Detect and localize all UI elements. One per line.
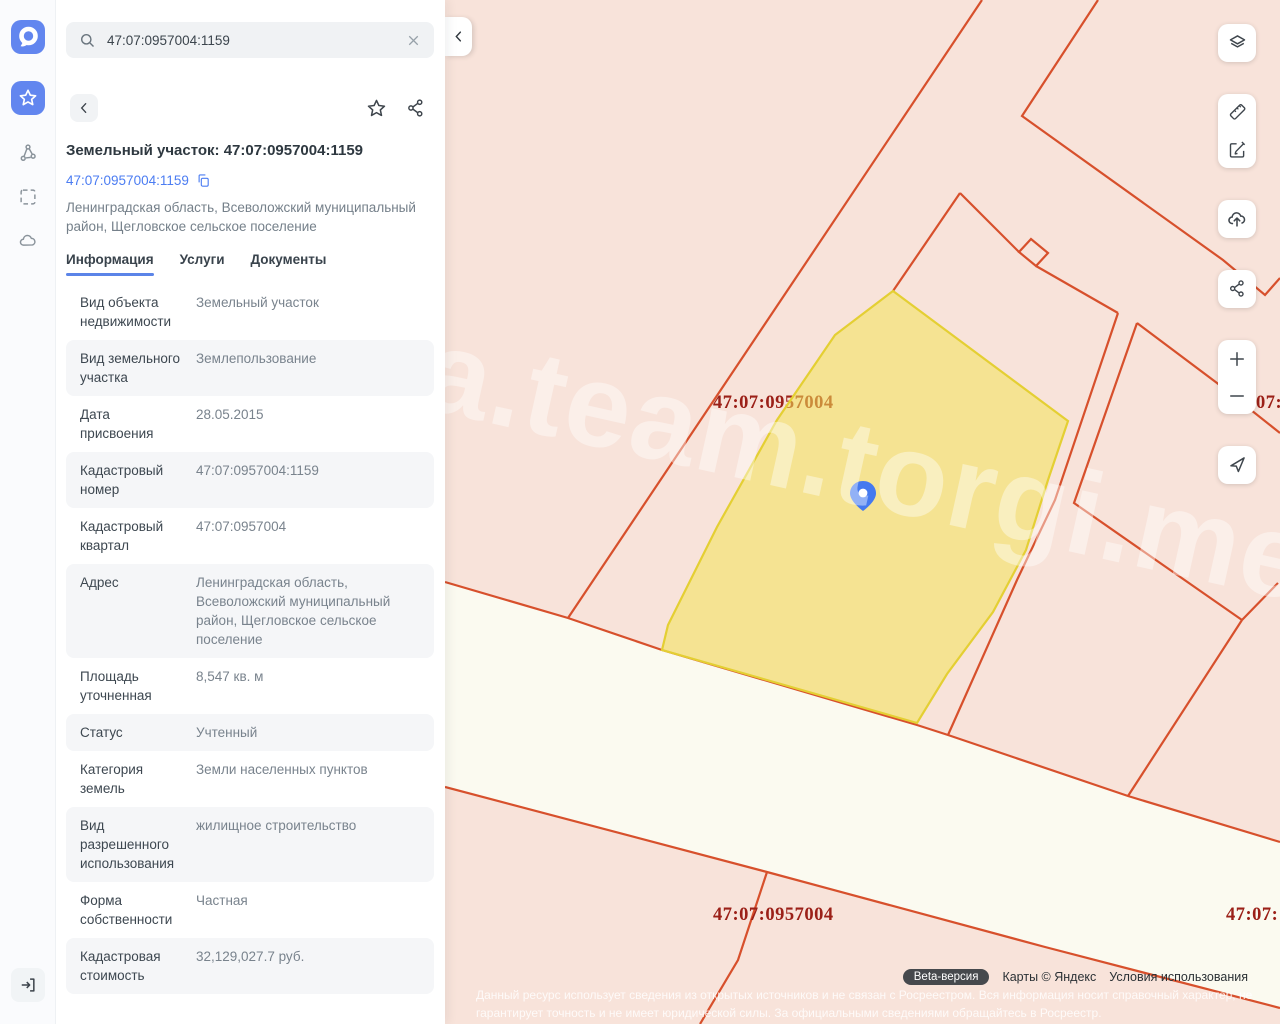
- upload-cloud-button[interactable]: [1218, 200, 1256, 237]
- minus-icon: [1227, 386, 1247, 406]
- map-attribution: Beta-версия Карты © Яндекс Условия испол…: [903, 969, 1248, 985]
- share-map-button[interactable]: [1218, 270, 1256, 307]
- chevron-left-icon: [451, 29, 466, 44]
- app-logo-icon: [15, 24, 41, 50]
- object-address: Ленинградская область, Всеволожский муни…: [66, 198, 430, 236]
- zoom-in-button[interactable]: [1218, 340, 1256, 377]
- edit-icon: [1227, 139, 1248, 160]
- row-value: Земельный участок: [196, 293, 420, 331]
- object-header-row: [70, 94, 430, 122]
- locate-control: [1218, 446, 1256, 484]
- row-value: 47:07:0957004:1159: [196, 461, 420, 499]
- quarter-label: 47:07:0957004: [713, 905, 834, 925]
- cadastral-number-link[interactable]: 47:07:0957004:1159: [66, 173, 189, 188]
- page-title: Земельный участок: 47:07:0957004:1159: [66, 142, 430, 159]
- row-value: 8,547 кв. м: [196, 667, 420, 705]
- ruler-button[interactable]: [1218, 94, 1256, 131]
- table-row: Форма собственности Частная: [66, 882, 434, 938]
- search-bar[interactable]: [66, 22, 434, 58]
- share-control: [1218, 270, 1256, 308]
- row-value: Частная: [196, 891, 420, 929]
- zoom-control: [1218, 340, 1256, 414]
- row-label: Форма собственности: [80, 891, 182, 929]
- tab-documents[interactable]: Документы: [251, 252, 327, 276]
- sidebar-item-graph[interactable]: [11, 131, 45, 175]
- sign-in-button[interactable]: [11, 968, 45, 1002]
- measure-edit-control: [1218, 94, 1256, 168]
- sidebar-item-cloud[interactable]: [11, 219, 45, 263]
- row-label: Статус: [80, 723, 182, 742]
- share-icon: [1227, 278, 1248, 299]
- table-row: Адрес Ленинградская область, Всеволожски…: [66, 564, 434, 658]
- layers-control: [1218, 24, 1256, 62]
- terms-of-use-link[interactable]: Условия использования: [1109, 970, 1248, 984]
- quarter-label-clipped: 07:: [1256, 393, 1280, 413]
- row-value: Землепользование: [196, 349, 420, 387]
- row-value: Земли населенных пунктов: [196, 760, 420, 798]
- cloud-upload-icon: [1226, 208, 1248, 230]
- tab-bar: Информация Услуги Документы: [66, 252, 430, 276]
- clear-search-icon[interactable]: [405, 32, 422, 49]
- row-label: Вид земельного участка: [80, 349, 182, 387]
- graph-nodes-icon: [17, 142, 39, 164]
- table-row: Площадь уточненная 8,547 кв. м: [66, 658, 434, 714]
- cadastral-map[interactable]: 47:07:0957004 47:07:0957004 07: 47:07: a…: [445, 0, 1280, 1024]
- row-label: Адрес: [80, 573, 182, 649]
- layers-button[interactable]: [1218, 24, 1256, 61]
- icon-rail: [0, 0, 56, 1024]
- plus-icon: [1227, 349, 1247, 369]
- row-label: Площадь уточненная: [80, 667, 182, 705]
- cloud-icon: [17, 230, 39, 252]
- table-row: Вид объекта недвижимости Земельный участ…: [66, 284, 434, 340]
- favorite-button[interactable]: [362, 94, 390, 122]
- edit-button[interactable]: [1218, 131, 1256, 168]
- sign-in-icon: [18, 975, 38, 995]
- chevron-left-icon: [76, 100, 92, 116]
- back-button[interactable]: [70, 94, 98, 122]
- share-icon: [405, 97, 427, 119]
- row-value: жилищное строительство: [196, 816, 420, 873]
- row-value: Ленинградская область, Всеволожский муни…: [196, 573, 420, 649]
- ruler-icon: [1227, 102, 1248, 123]
- row-label: Кадастровый квартал: [80, 517, 182, 555]
- table-row: Вид разрешенного использования жилищное …: [66, 807, 434, 882]
- cadastral-link-row: 47:07:0957004:1159: [66, 173, 430, 188]
- table-row: Кадастровый квартал 47:07:0957004: [66, 508, 434, 564]
- collapse-panel-button[interactable]: [445, 17, 472, 56]
- sidebar-item-select-area[interactable]: [11, 175, 45, 219]
- upload-control: [1218, 200, 1256, 238]
- row-value: 28.05.2015: [196, 405, 420, 443]
- table-row: Статус Учтенный: [66, 714, 434, 751]
- my-location-button[interactable]: [1218, 446, 1256, 483]
- map-canvas: 47:07:0957004 47:07:0957004 07: 47:07:: [445, 0, 1280, 1024]
- table-row: Вид земельного участка Землепользование: [66, 340, 434, 396]
- attributes-table: Вид объекта недвижимости Земельный участ…: [66, 284, 434, 994]
- object-panel: Земельный участок: 47:07:0957004:1159 47…: [55, 0, 445, 1024]
- row-value: 32,129,027.7 руб.: [196, 947, 420, 985]
- row-value: 47:07:0957004: [196, 517, 420, 555]
- tab-information[interactable]: Информация: [66, 252, 154, 276]
- app-logo[interactable]: [11, 20, 45, 54]
- row-value: Учтенный: [196, 723, 420, 742]
- star-icon: [17, 87, 39, 109]
- table-row: Кадастровый номер 47:07:0957004:1159: [66, 452, 434, 508]
- table-row: Категория земель Земли населенных пункто…: [66, 751, 434, 807]
- row-label: Вид разрешенного использования: [80, 816, 182, 873]
- beta-badge: Beta-версия: [903, 969, 990, 985]
- map-disclaimer: Данный ресурс использует сведения из отк…: [476, 986, 1280, 1022]
- row-label: Дата присвоения: [80, 405, 182, 443]
- navigation-arrow-icon: [1227, 454, 1248, 475]
- row-label: Вид объекта недвижимости: [80, 293, 182, 331]
- row-label: Кадастровая стоимость: [80, 947, 182, 985]
- layers-icon: [1227, 32, 1248, 53]
- copy-icon[interactable]: [196, 173, 211, 188]
- search-input[interactable]: [105, 32, 397, 49]
- sidebar-item-favorites[interactable]: [11, 81, 45, 115]
- star-outline-icon: [365, 97, 388, 120]
- search-icon: [78, 31, 97, 50]
- select-area-icon: [17, 186, 39, 208]
- map-provider-link[interactable]: Карты © Яндекс: [1002, 970, 1096, 984]
- table-row: Кадастровая стоимость 32,129,027.7 руб.: [66, 938, 434, 994]
- share-button[interactable]: [402, 94, 430, 122]
- zoom-out-button[interactable]: [1218, 377, 1256, 414]
- row-label: Кадастровый номер: [80, 461, 182, 499]
- tab-services[interactable]: Услуги: [180, 252, 225, 276]
- quarter-label-clipped: 47:07:: [1226, 905, 1278, 925]
- row-label: Категория земель: [80, 760, 182, 798]
- table-row: Дата присвоения 28.05.2015: [66, 396, 434, 452]
